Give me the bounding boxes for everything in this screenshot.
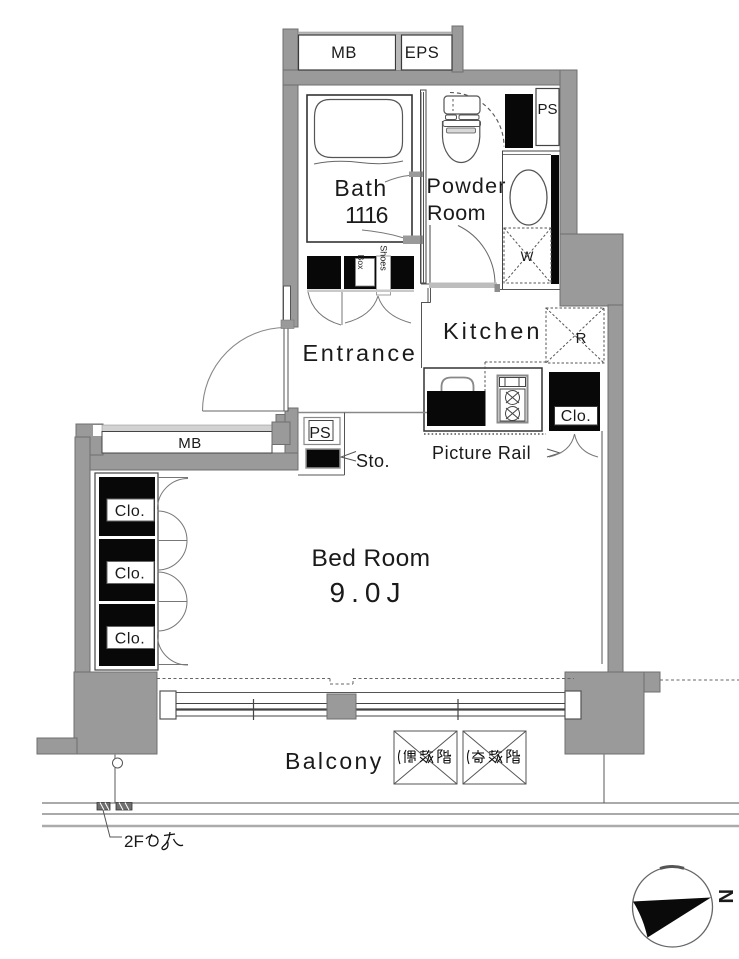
svg-text:Shoes: Shoes bbox=[379, 245, 389, 271]
svg-text:Clo.: Clo. bbox=[115, 503, 145, 520]
svg-text:9.0J: 9.0J bbox=[330, 577, 407, 608]
svg-text:Powder: Powder bbox=[427, 174, 507, 198]
svg-text:Clo.: Clo. bbox=[115, 631, 145, 648]
svg-text:Picture Rail: Picture Rail bbox=[432, 443, 531, 463]
svg-text:Kitchen: Kitchen bbox=[443, 318, 542, 344]
svg-text:Sto.: Sto. bbox=[356, 451, 390, 471]
svg-text:PS: PS bbox=[309, 425, 330, 442]
svg-text:MB: MB bbox=[331, 44, 357, 62]
svg-text:W: W bbox=[521, 249, 534, 264]
svg-text:Bath: Bath bbox=[334, 175, 387, 201]
svg-text:PS: PS bbox=[537, 101, 557, 118]
svg-text:Clo.: Clo. bbox=[561, 408, 591, 425]
svg-text:Entrance: Entrance bbox=[303, 340, 418, 366]
svg-text:Bed Room: Bed Room bbox=[312, 545, 431, 572]
svg-text:2F: 2F bbox=[124, 832, 144, 851]
svg-text:Room: Room bbox=[427, 201, 486, 225]
svg-text:1116: 1116 bbox=[345, 202, 387, 228]
svg-text:Clo.: Clo. bbox=[115, 566, 145, 583]
svg-text:EPS: EPS bbox=[405, 44, 440, 62]
svg-text:N: N bbox=[714, 889, 736, 903]
svg-text:R: R bbox=[576, 330, 587, 347]
svg-text:Balcony: Balcony bbox=[285, 748, 384, 774]
svg-text:MB: MB bbox=[178, 435, 202, 452]
svg-text:Box: Box bbox=[356, 255, 366, 270]
